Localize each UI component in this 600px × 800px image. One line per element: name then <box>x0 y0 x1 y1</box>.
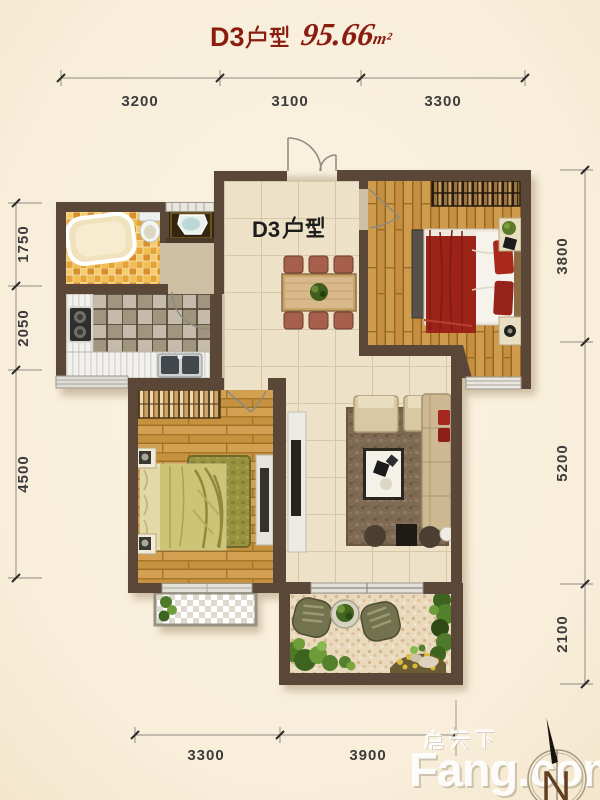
svg-text:D3: D3 <box>252 217 280 242</box>
svg-text:1750: 1750 <box>15 225 32 262</box>
svg-text:Fang.com: Fang.com <box>409 743 600 796</box>
svg-text:3900: 3900 <box>349 747 386 764</box>
svg-text:D3: D3 <box>210 22 245 52</box>
svg-text:3300: 3300 <box>424 93 461 110</box>
svg-text:3300: 3300 <box>187 747 224 764</box>
svg-text:2050: 2050 <box>15 309 32 346</box>
svg-text:2100: 2100 <box>554 615 571 652</box>
svg-text:3200: 3200 <box>121 93 158 110</box>
svg-text:4500: 4500 <box>15 455 32 492</box>
svg-text:3100: 3100 <box>271 93 308 110</box>
svg-text:3800: 3800 <box>554 237 571 274</box>
svg-text:5200: 5200 <box>554 444 571 481</box>
svg-text:N: N <box>541 762 571 800</box>
